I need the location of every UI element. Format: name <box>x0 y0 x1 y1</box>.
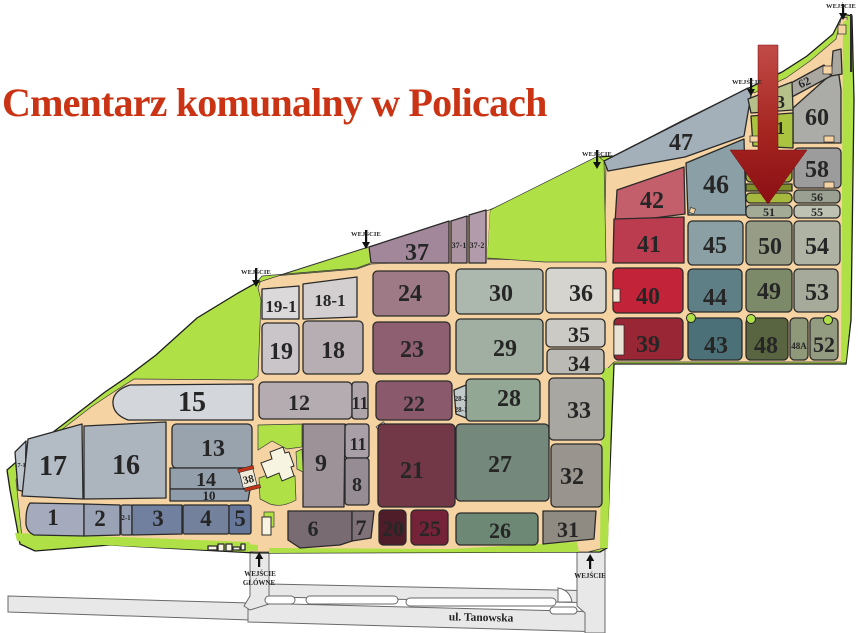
svg-text:52: 52 <box>813 332 835 357</box>
svg-text:55: 55 <box>811 205 823 219</box>
svg-text:11: 11 <box>351 393 368 413</box>
svg-text:19: 19 <box>269 339 293 365</box>
svg-text:WEJŚCIE: WEJŚCIE <box>732 78 762 86</box>
svg-text:28: 28 <box>497 386 521 412</box>
svg-text:5: 5 <box>234 506 246 531</box>
svg-text:45: 45 <box>703 233 727 259</box>
svg-text:60: 60 <box>805 105 829 131</box>
svg-text:31: 31 <box>557 517 579 542</box>
svg-text:51: 51 <box>763 205 775 219</box>
svg-text:7: 7 <box>356 515 367 540</box>
svg-text:30: 30 <box>489 281 513 307</box>
svg-text:43: 43 <box>704 333 728 359</box>
svg-text:GŁÓWNE: GŁÓWNE <box>243 579 276 587</box>
svg-text:37: 37 <box>405 240 429 266</box>
svg-text:50: 50 <box>758 234 782 260</box>
svg-text:41: 41 <box>637 232 661 258</box>
svg-text:17-1: 17-1 <box>15 463 26 469</box>
svg-text:37-2: 37-2 <box>470 241 485 250</box>
svg-text:Cmentarz komunalny w Policach: Cmentarz komunalny w Policach <box>2 80 547 125</box>
svg-text:44: 44 <box>703 285 727 311</box>
svg-text:37-1: 37-1 <box>452 241 467 250</box>
svg-text:15: 15 <box>178 387 206 418</box>
svg-text:47: 47 <box>669 130 693 156</box>
svg-text:10: 10 <box>203 488 216 503</box>
svg-text:28-1: 28-1 <box>455 406 468 414</box>
svg-text:24: 24 <box>398 281 422 307</box>
svg-text:11: 11 <box>349 434 366 454</box>
svg-text:48: 48 <box>754 333 778 359</box>
svg-text:WEJŚCIE: WEJŚCIE <box>574 572 606 580</box>
svg-text:26: 26 <box>489 518 511 543</box>
svg-text:39: 39 <box>636 332 660 358</box>
svg-text:18-1: 18-1 <box>314 291 345 310</box>
svg-text:WEJŚCIE: WEJŚCIE <box>241 268 271 276</box>
svg-text:18: 18 <box>321 338 345 364</box>
svg-text:17: 17 <box>39 451 67 482</box>
svg-text:40: 40 <box>636 284 660 310</box>
svg-text:19-1: 19-1 <box>265 297 296 316</box>
svg-text:46: 46 <box>703 170 729 199</box>
svg-text:29: 29 <box>493 336 517 362</box>
svg-text:4: 4 <box>200 506 212 531</box>
svg-text:WEJŚCIE: WEJŚCIE <box>351 230 381 238</box>
svg-text:35: 35 <box>568 322 590 347</box>
svg-text:9: 9 <box>315 451 327 477</box>
svg-text:2: 2 <box>94 506 106 531</box>
svg-text:34: 34 <box>568 351 590 376</box>
svg-text:58: 58 <box>805 157 829 183</box>
svg-text:3: 3 <box>152 506 164 531</box>
svg-text:1: 1 <box>47 505 59 530</box>
svg-text:2-1: 2-1 <box>121 514 131 522</box>
svg-text:53: 53 <box>805 280 829 306</box>
svg-text:28-2: 28-2 <box>455 395 468 403</box>
svg-text:21: 21 <box>400 458 424 484</box>
svg-text:20: 20 <box>382 516 404 541</box>
svg-text:36: 36 <box>569 281 593 307</box>
svg-text:6: 6 <box>308 516 319 541</box>
svg-text:27: 27 <box>488 452 512 478</box>
svg-text:WEJŚCIE: WEJŚCIE <box>244 570 276 578</box>
svg-text:WEJŚCIE: WEJŚCIE <box>582 150 612 158</box>
svg-text:8: 8 <box>352 474 362 496</box>
svg-text:ul. Tanowska: ul. Tanowska <box>449 611 514 624</box>
svg-text:33: 33 <box>567 398 591 424</box>
svg-text:22: 22 <box>403 391 425 416</box>
svg-text:12: 12 <box>288 390 310 415</box>
svg-text:13: 13 <box>201 436 225 462</box>
svg-text:49: 49 <box>757 279 781 305</box>
svg-text:23: 23 <box>400 337 424 363</box>
svg-text:16: 16 <box>112 450 140 481</box>
svg-text:25: 25 <box>419 516 441 541</box>
svg-text:54: 54 <box>805 234 829 260</box>
svg-text:32: 32 <box>560 464 584 490</box>
svg-text:WEJŚCIE: WEJŚCIE <box>826 2 856 10</box>
svg-text:56: 56 <box>811 190 823 204</box>
svg-text:42: 42 <box>640 188 664 214</box>
svg-text:48A: 48A <box>791 341 807 351</box>
